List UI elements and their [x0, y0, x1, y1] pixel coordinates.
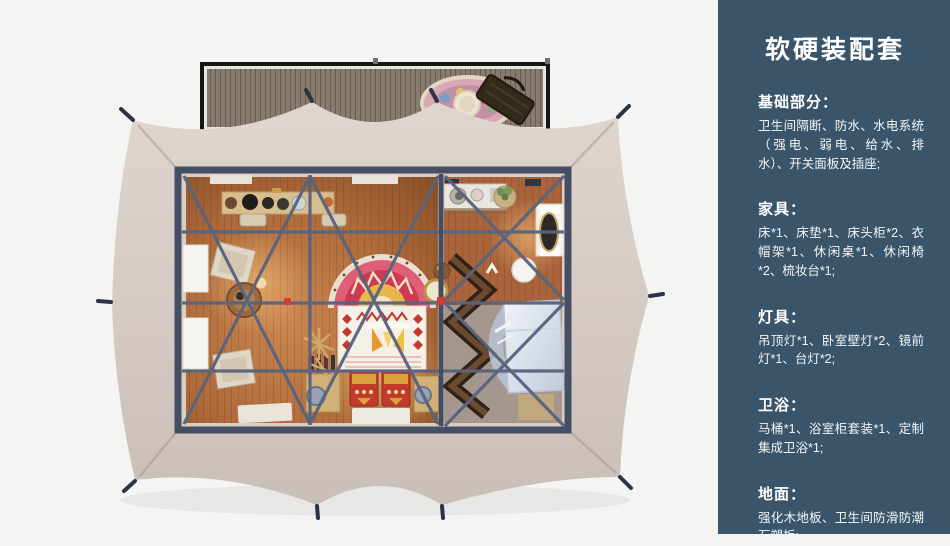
section-lighting-body: 吊顶灯*1、卧室壁灯*2、镜前灯*1、台灯*2;	[758, 332, 924, 370]
floor-mat	[238, 403, 293, 424]
section-bathroom-heading: 卫浴：	[758, 394, 924, 415]
section-bathroom-body: 马桶*1、浴室柜套装*1、定制集成卫浴*1;	[758, 420, 924, 458]
section-basics-heading: 基础部分：	[758, 91, 924, 112]
window	[183, 245, 208, 292]
section-furniture-heading: 家具：	[758, 198, 924, 219]
vanity-stool	[512, 258, 536, 282]
section-bathroom: 卫浴： 马桶*1、浴室柜套装*1、定制集成卫浴*1;	[758, 394, 924, 458]
section-basics: 基础部分： 卫生间隔断、防水、水电系统（强电、弱电、给水、排水）、开关面板及插座…	[758, 91, 924, 173]
blanket-chest	[382, 372, 410, 406]
plant-basket	[494, 186, 516, 208]
section-flooring-heading: 地面：	[758, 483, 924, 504]
floorplan-render	[0, 0, 718, 534]
ceiling-vent	[210, 175, 252, 184]
floor-mat	[352, 408, 410, 424]
section-flooring-body: 强化木地板、卫生间防滑防潮石塑板;	[758, 509, 924, 546]
section-lighting: 灯具： 吊顶灯*1、卧室壁灯*2、镜前灯*1、台灯*2;	[758, 306, 924, 370]
ground-shadow	[120, 484, 630, 516]
beam-joint	[284, 298, 291, 305]
section-flooring: 地面： 强化木地板、卫生间防滑防潮石塑板;	[758, 483, 924, 546]
panel-title: 软硬装配套	[746, 30, 924, 66]
guest-room	[178, 170, 568, 437]
section-furniture: 家具： 床*1、床垫*1、床头柜*2、衣帽架*1、休闲桌*1、休闲椅*2、梳妆台…	[758, 198, 924, 280]
spec-panel: 软硬装配套 基础部分： 卫生间隔断、防水、水电系统（强电、弱电、给水、排水）、开…	[718, 0, 950, 534]
window	[183, 318, 208, 369]
beam-joint	[437, 297, 445, 305]
section-lighting-heading: 灯具：	[758, 306, 924, 327]
ceiling-vent	[352, 175, 398, 184]
blanket-chest	[350, 372, 378, 406]
section-basics-body: 卫生间隔断、防水、水电系统（强电、弱电、给水、排水）、开关面板及插座;	[758, 117, 924, 173]
tent-floorplan-svg	[0, 0, 718, 534]
vanity-table	[536, 204, 564, 256]
section-furniture-body: 床*1、床垫*1、床头柜*2、衣帽架*1、休闲桌*1、休闲椅*2、梳妆台*1;	[758, 224, 924, 280]
page: 软硬装配套 基础部分： 卫生间隔断、防水、水电系统（强电、弱电、给水、排水）、开…	[0, 0, 950, 534]
stool	[240, 214, 266, 226]
